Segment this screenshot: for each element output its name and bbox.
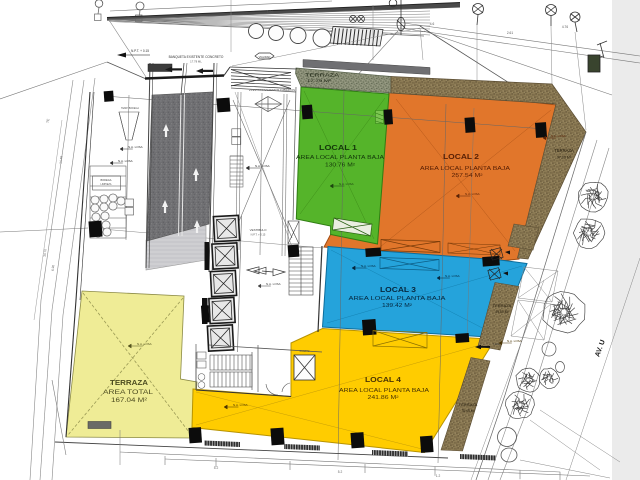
svg-text:N.A. LOSA: N.A. LOSA bbox=[339, 182, 354, 186]
svg-text:AREA LOCAL PLANTA BAJA: AREA LOCAL PLANTA BAJA bbox=[420, 166, 510, 172]
svg-text:167.04 M²: 167.04 M² bbox=[111, 398, 147, 404]
svg-text:5.2: 5.2 bbox=[338, 470, 343, 474]
svg-text:N.A. LOSA: N.A. LOSA bbox=[551, 134, 566, 138]
svg-text:TEMP. BODEGA: TEMP. BODEGA bbox=[121, 107, 139, 110]
svg-text:LOCAL 3: LOCAL 3 bbox=[380, 287, 416, 294]
svg-text:BODEGA: BODEGA bbox=[100, 178, 111, 182]
svg-text:AREA TOTAL: AREA TOTAL bbox=[103, 389, 154, 396]
svg-text:1.2: 1.2 bbox=[436, 474, 441, 478]
svg-text:5.2: 5.2 bbox=[214, 466, 219, 470]
svg-text:TERRAZA: TERRAZA bbox=[305, 73, 339, 78]
svg-text:LIMPIEZA: LIMPIEZA bbox=[101, 183, 112, 186]
svg-text:AREA LOCAL PLANTA BAJA: AREA LOCAL PLANTA BAJA bbox=[339, 388, 429, 394]
svg-text:N.P.T. + 0.15: N.P.T. + 0.15 bbox=[131, 49, 149, 53]
svg-text:TERRAZA: TERRAZA bbox=[459, 402, 478, 407]
svg-text:130.76 M²: 130.76 M² bbox=[325, 163, 355, 169]
svg-text:2.61: 2.61 bbox=[507, 31, 513, 35]
svg-text:VIALIDAD: VIALIDAD bbox=[259, 55, 271, 59]
svg-text:CUARTO: CUARTO bbox=[299, 350, 309, 353]
svg-text:17.78 ML: 17.78 ML bbox=[190, 60, 202, 64]
svg-text:257.54 M²: 257.54 M² bbox=[452, 173, 483, 179]
svg-text:TERRAZA: TERRAZA bbox=[554, 148, 574, 153]
svg-text:78.49 M²: 78.49 M² bbox=[461, 409, 475, 413]
svg-text:LOCAL 1: LOCAL 1 bbox=[319, 145, 357, 152]
svg-text:LOCAL 2: LOCAL 2 bbox=[443, 154, 479, 161]
svg-text:N.P.T. + 0.15: N.P.T. + 0.15 bbox=[251, 233, 266, 237]
svg-text:TERRAZA: TERRAZA bbox=[493, 303, 512, 308]
svg-text:N.A. LOSA: N.A. LOSA bbox=[266, 282, 281, 286]
svg-text:241.86 M²: 241.86 M² bbox=[368, 395, 399, 401]
svg-text:4.6: 4.6 bbox=[430, 22, 435, 26]
svg-text:N.A. LOSA: N.A. LOSA bbox=[128, 145, 143, 149]
svg-text:17.79 M²: 17.79 M² bbox=[307, 79, 332, 83]
svg-text:N.A. LOSA: N.A. LOSA bbox=[233, 403, 248, 407]
svg-text:N.A. LOSA: N.A. LOSA bbox=[507, 339, 522, 343]
svg-text:4.76: 4.76 bbox=[562, 25, 568, 29]
svg-text:21 ESTACIONAMIENTOS CUBIERTOS: 21 ESTACIONAMIENTOS CUBIERTOS bbox=[249, 88, 295, 92]
svg-text:97.03 M²: 97.03 M² bbox=[557, 156, 572, 160]
svg-text:BANQUETA EXISTENTE CONCRETO: BANQUETA EXISTENTE CONCRETO bbox=[169, 55, 224, 59]
svg-text:49.60 M²: 49.60 M² bbox=[495, 310, 509, 314]
svg-text:AREA LOCAL PLANTA BAJA: AREA LOCAL PLANTA BAJA bbox=[296, 155, 384, 161]
svg-text:N.A. LOSA: N.A. LOSA bbox=[361, 264, 376, 268]
svg-text:N.A. LOSA: N.A. LOSA bbox=[255, 164, 270, 168]
svg-text:N.A. LOSA: N.A. LOSA bbox=[445, 274, 460, 278]
svg-text:N.A. LOSA: N.A. LOSA bbox=[137, 342, 152, 346]
svg-text:N.A. LOSA: N.A. LOSA bbox=[118, 159, 133, 163]
svg-text:TERRAZA: TERRAZA bbox=[110, 380, 148, 387]
svg-text:VESTIBULO: VESTIBULO bbox=[250, 228, 268, 232]
svg-text:139.42 M²: 139.42 M² bbox=[382, 303, 412, 309]
svg-text:LOCAL 4: LOCAL 4 bbox=[365, 377, 401, 384]
svg-text:N.A. LOSA: N.A. LOSA bbox=[465, 192, 480, 196]
svg-text:1.95: 1.95 bbox=[267, 10, 274, 14]
svg-text:AREA LOCAL PLANTA BAJA: AREA LOCAL PLANTA BAJA bbox=[349, 296, 446, 302]
